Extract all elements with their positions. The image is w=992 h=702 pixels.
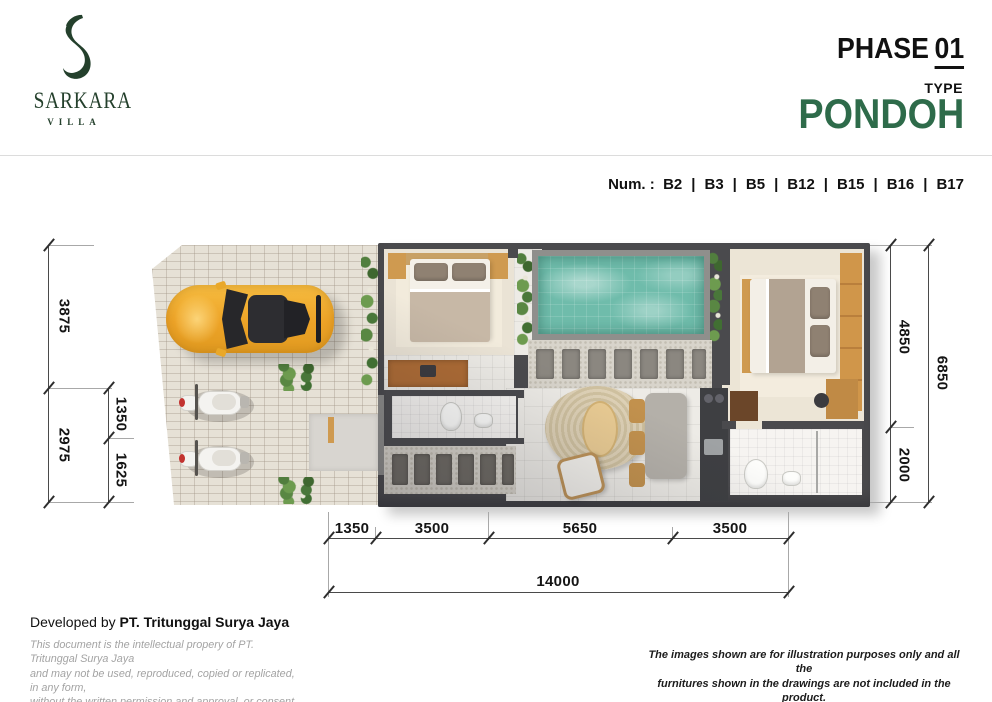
scooter-illustration <box>178 436 254 482</box>
dim-label-2975: 2975 <box>56 428 73 463</box>
dining-chair <box>629 463 645 487</box>
stepping-stone <box>562 349 580 379</box>
entry-door-leaf <box>328 417 334 443</box>
car-roof <box>248 295 288 343</box>
wall-notch <box>508 249 518 258</box>
stepping-stone <box>436 454 452 485</box>
dimension-line-bottom-total <box>328 592 788 593</box>
entry-path <box>309 414 378 471</box>
entry-opening <box>378 395 384 475</box>
kitchen-sink <box>704 439 723 455</box>
floor-plan <box>150 243 870 507</box>
desk-chair <box>814 393 829 408</box>
extension-line <box>870 245 932 246</box>
dim-label-4850: 4850 <box>896 320 913 355</box>
extension-line <box>48 502 134 503</box>
sink <box>474 413 493 428</box>
phase-number: 01 <box>934 33 964 69</box>
bed-2-pillow <box>810 287 830 319</box>
plants-pool-left <box>517 251 533 347</box>
stepping-stone <box>414 454 430 485</box>
toilet <box>440 402 462 431</box>
stepping-stone <box>536 349 554 379</box>
phase-label: PHASE <box>837 33 929 65</box>
dining-table <box>645 393 687 479</box>
nightstand <box>488 253 508 279</box>
stepping-stone <box>588 349 606 379</box>
stepping-stone <box>614 349 632 379</box>
stepping-stone <box>502 454 514 485</box>
extension-line <box>48 245 94 246</box>
stepping-stone <box>640 349 658 379</box>
bedroom-2-console <box>826 379 858 419</box>
stepping-stone <box>480 454 496 485</box>
dim-label-6850: 6850 <box>934 356 951 391</box>
dim-label-2000: 2000 <box>896 448 913 483</box>
type-name: PONDOH <box>798 90 964 138</box>
dimension-line-right-outer <box>928 245 929 502</box>
dim-label-1350-bottom: 1350 <box>335 520 370 537</box>
dining-chair <box>629 399 645 423</box>
pool <box>538 256 704 334</box>
stepping-stone <box>666 349 684 379</box>
dim-label-1350-left: 1350 <box>113 397 130 432</box>
unit-numbers-line: Num. : B2|B3|B5|B12|B15|B16|B17 <box>608 176 964 193</box>
unit-numbers-label: Num. : <box>608 176 655 193</box>
scooter-seat <box>212 394 236 410</box>
extension-line <box>48 388 112 389</box>
stepping-stones-row <box>384 446 516 494</box>
dim-label-3500-a: 3500 <box>415 520 450 537</box>
logo-s-icon <box>54 14 94 86</box>
bathroom-2-door-opening <box>736 421 762 429</box>
header-divider <box>0 155 992 156</box>
car-spoiler <box>316 295 321 343</box>
stepping-stone <box>458 454 474 485</box>
phase-title: PHASE01 <box>837 33 964 66</box>
stove-burner <box>704 394 713 403</box>
dining-chair <box>629 431 645 455</box>
stepping-stones-row <box>528 340 712 388</box>
dim-label-3500-b: 3500 <box>713 520 748 537</box>
brand-logo: SARKARA VILLA <box>26 14 122 127</box>
extension-line <box>328 512 329 597</box>
extension-line <box>788 512 789 597</box>
developer-name: PT. Tritunggal Surya Jaya <box>120 614 290 630</box>
dim-label-14000: 14000 <box>536 573 579 590</box>
extension-line <box>108 438 134 439</box>
bed-2-blanket <box>766 279 805 373</box>
dimension-line-left-inner <box>108 388 109 502</box>
stepping-stone <box>692 349 706 379</box>
shower-glass-divider <box>816 431 818 493</box>
legal-disclaimer: This document is the intellectual proper… <box>30 638 300 702</box>
developed-by-label: Developed by <box>30 614 116 630</box>
dimension-line-right-inner <box>890 245 891 502</box>
extension-line <box>890 427 914 428</box>
bathroom-1-door-opening <box>518 398 524 438</box>
nightstand <box>388 253 406 279</box>
scooter-illustration <box>178 380 254 426</box>
sink <box>782 471 801 486</box>
developed-by-line: Developed by PT. Tritunggal Surya Jaya <box>30 614 289 630</box>
car-hood <box>174 294 220 344</box>
bed-1-pillow <box>452 263 486 281</box>
brand-name: SARKARA <box>34 88 115 114</box>
brochure-page: SARKARA VILLA PHASE01 TYPE PONDOH Num. :… <box>0 0 992 702</box>
toilet <box>744 459 768 489</box>
dim-label-3875: 3875 <box>56 299 73 334</box>
plant-bed <box>270 364 325 391</box>
plants-front-wall <box>361 251 378 391</box>
desk-item <box>420 365 436 377</box>
extension-line <box>870 502 932 503</box>
dimension-line-left-outer <box>48 245 49 502</box>
scooter-seat <box>212 450 236 466</box>
coffee-table <box>582 401 618 457</box>
scooter-rear <box>240 452 249 464</box>
wall-living-bedroom2 <box>722 249 730 385</box>
door-mat <box>730 391 758 421</box>
brand-sub: VILLA <box>26 117 122 127</box>
stepping-stone <box>392 454 408 485</box>
unit-numbers-list: B2|B3|B5|B12|B15|B16|B17 <box>663 176 964 193</box>
bed-1-blanket <box>410 289 490 342</box>
plant-bed <box>270 477 325 504</box>
stove-burner <box>715 394 724 403</box>
dim-label-1625: 1625 <box>113 453 130 488</box>
building <box>378 243 870 507</box>
dim-label-5650: 5650 <box>563 520 598 537</box>
scooter-rear <box>240 396 249 408</box>
scooter-light <box>179 398 185 407</box>
car-illustration <box>166 285 334 353</box>
bed-1-pillow <box>414 263 448 281</box>
scooter-light <box>179 454 185 463</box>
bed-2-pillow <box>810 325 830 357</box>
dimension-line-bottom <box>328 538 788 539</box>
illustration-disclaimer: The images shown are for illustration pu… <box>644 648 964 702</box>
